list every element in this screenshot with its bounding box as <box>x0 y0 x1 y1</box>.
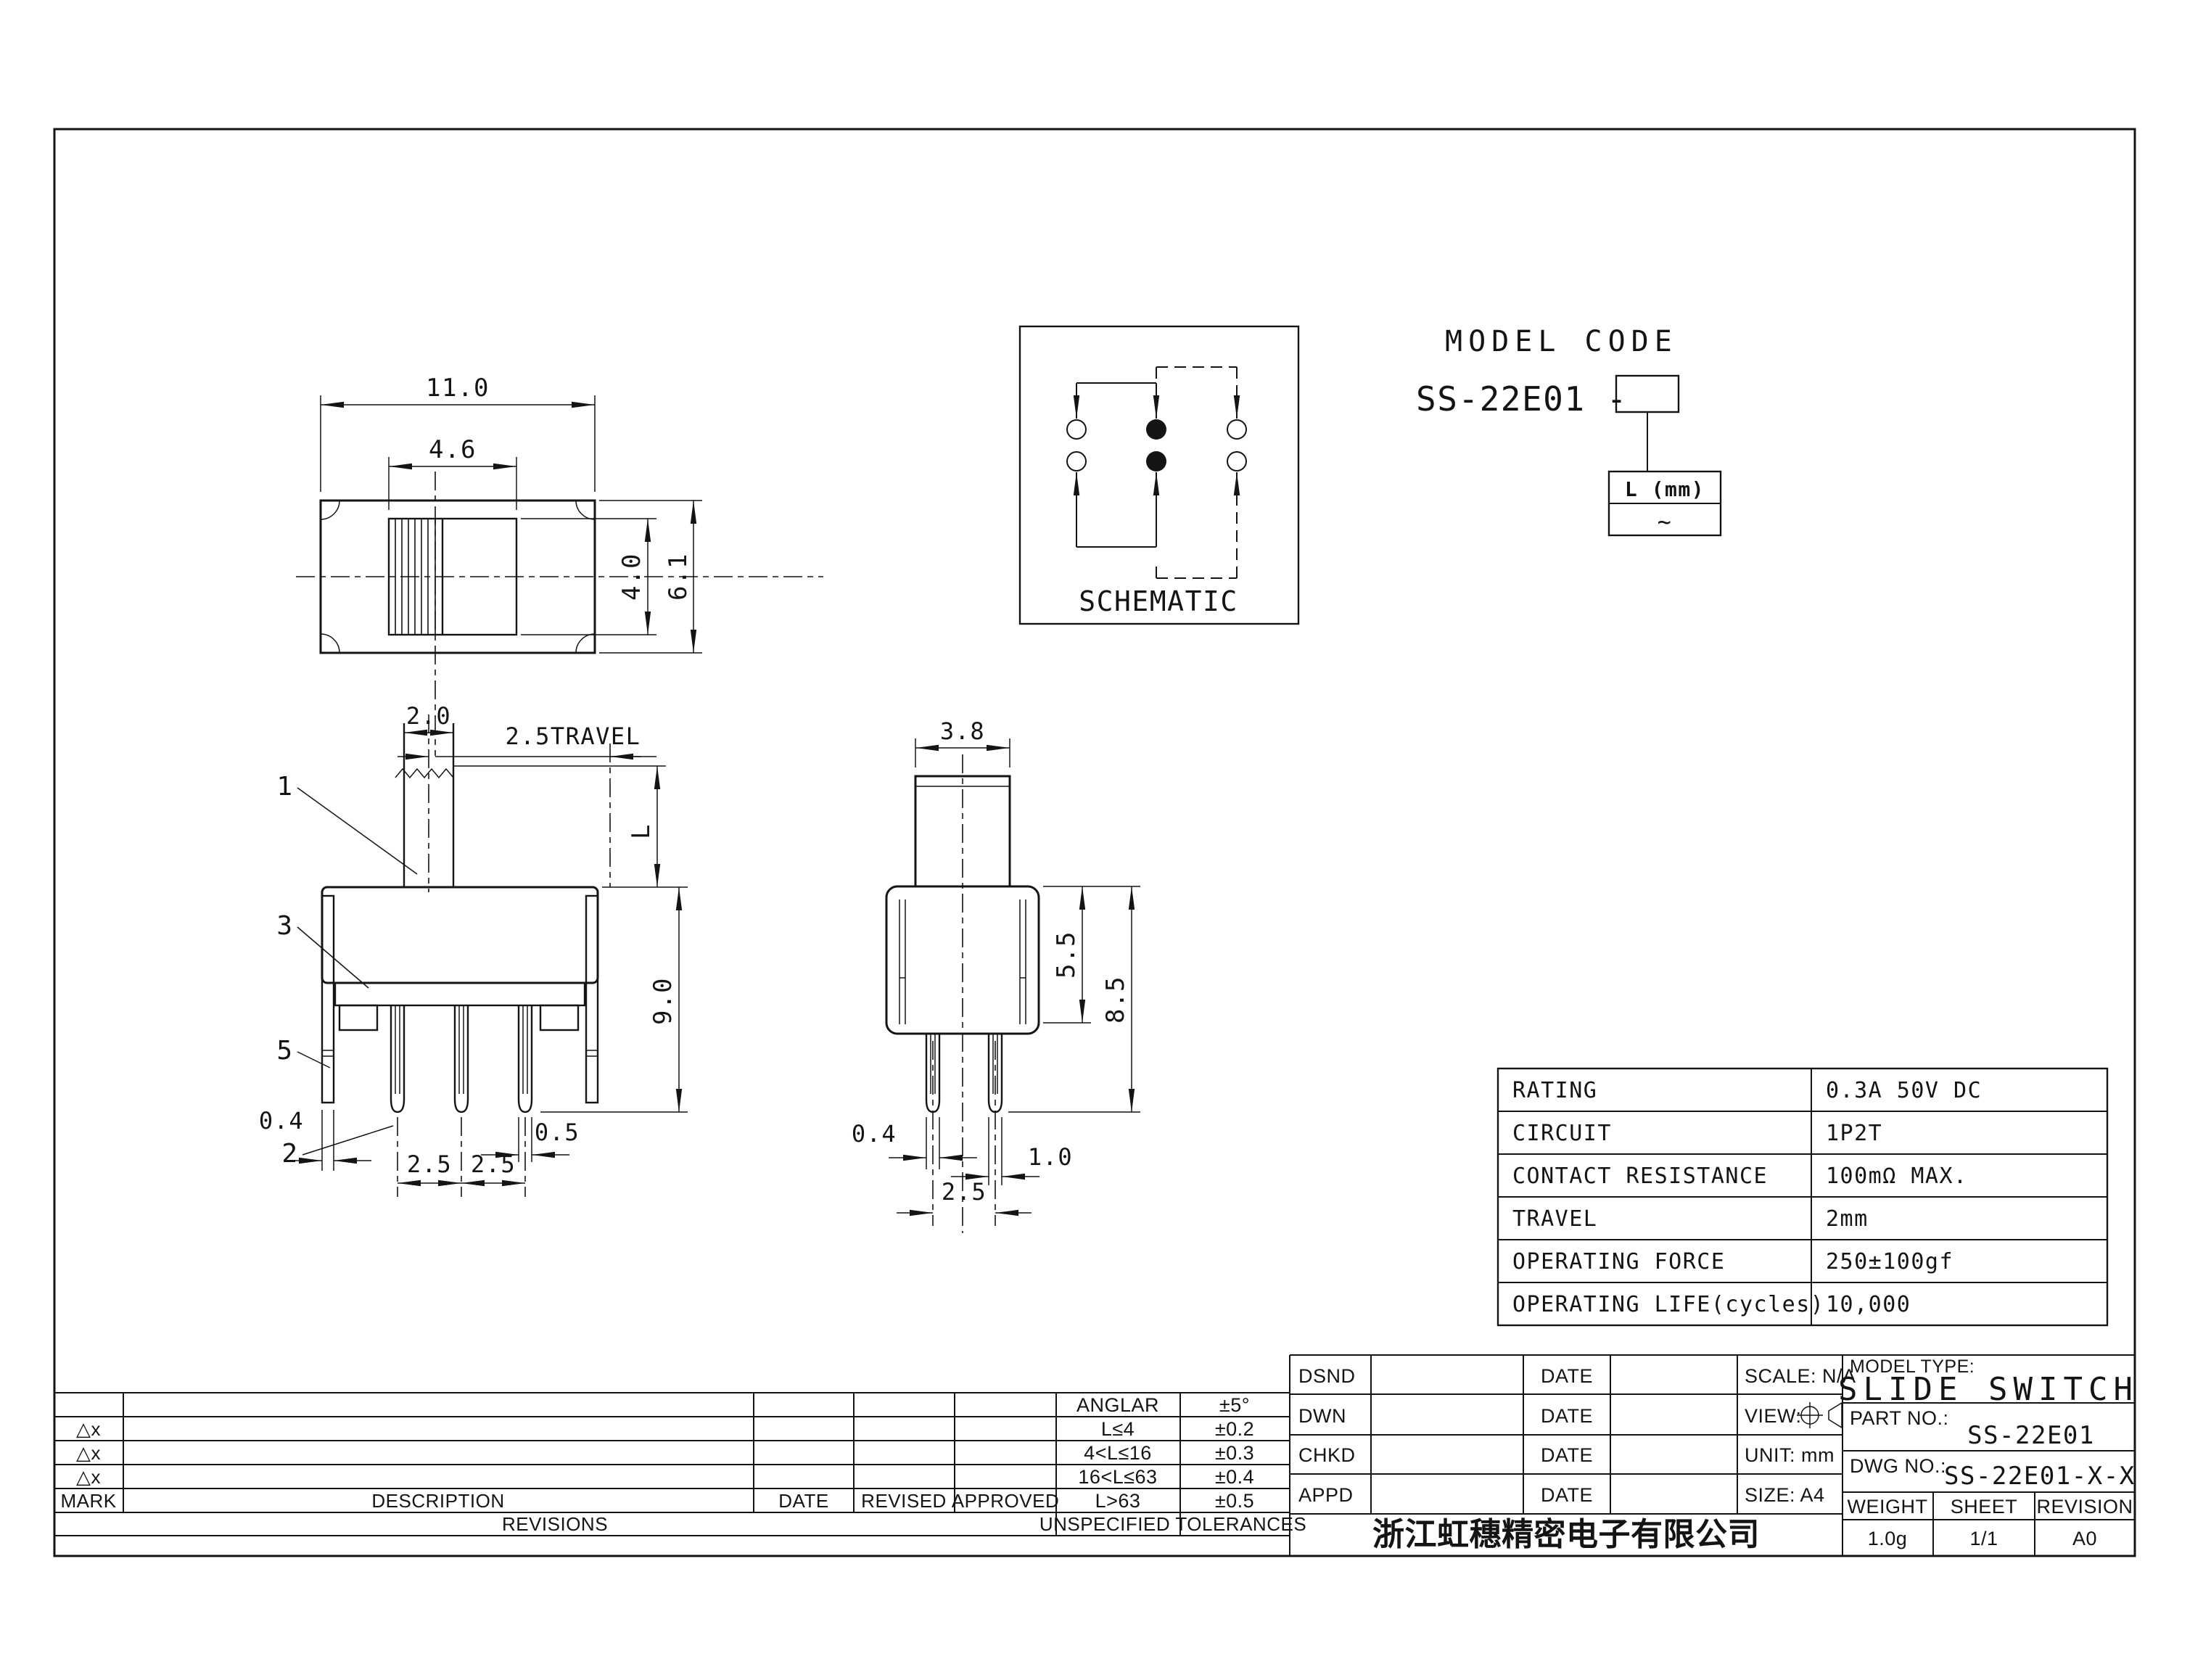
size-value: SIZE: A4 <box>1745 1484 1825 1506</box>
product-info-block: MODEL TYPE: SLIDE SWITCH PART NO.: SS-22… <box>1838 1356 2138 1556</box>
spec-label: OPERATING LIFE(cycles) <box>1512 1292 1824 1317</box>
contact-dots <box>1067 419 1246 472</box>
spec-label: RATING <box>1512 1078 1597 1103</box>
top-view: 11.0 4.6 4.0 6.1 <box>296 374 823 756</box>
col-header-description: DESCRIPTION <box>371 1490 504 1512</box>
dwg-no-label: DWG NO.: <box>1850 1455 1946 1477</box>
weight-label: WEIGHT <box>1848 1496 1928 1518</box>
dim-label: L <box>627 823 656 839</box>
part-no-label: PART NO.: <box>1850 1407 1949 1429</box>
spec-value: 10,000 <box>1826 1292 1911 1317</box>
weight-value: 1.0g <box>1868 1528 1908 1549</box>
revision-label: REVISION <box>2036 1496 2133 1518</box>
callout-label: 1 <box>276 772 293 802</box>
revision-mark: △x <box>76 1442 101 1464</box>
tol-range: L>63 <box>1095 1490 1141 1512</box>
dim-label: 11.0 <box>426 374 490 403</box>
spec-value: 0.3A 50V DC <box>1826 1078 1982 1103</box>
dim-label: 9.0 <box>649 977 678 1025</box>
spec-value: 250±100gf <box>1826 1249 1953 1275</box>
legend-tilde: ~ <box>1658 508 1673 535</box>
callout-label: 5 <box>276 1036 293 1066</box>
dwg-no-value: SS-22E01-X-X <box>1944 1462 2136 1491</box>
col-header-date: DATE <box>778 1490 828 1512</box>
signoff-date: DATE <box>1541 1365 1593 1387</box>
col-header-revised: REVISED <box>861 1490 947 1512</box>
drawing-sheet: 11.0 4.6 4.0 6.1 2.0 2.5TRAVEL <box>0 0 2211 1680</box>
dim-label: 8.5 <box>1101 976 1130 1024</box>
tol-value: ±0.2 <box>1215 1418 1254 1440</box>
dim-label: 3.8 <box>940 717 985 745</box>
spec-value: 100mΩ MAX. <box>1826 1164 1968 1189</box>
model-code-heading: MODEL CODE <box>1445 325 1678 358</box>
company-name: 浙江虹穗精密电子有限公司 <box>1372 1517 1760 1552</box>
tol-value: ±0.3 <box>1215 1442 1254 1464</box>
projection-symbol-icon <box>1797 1402 1842 1428</box>
dim-label: 2.0 <box>406 702 451 730</box>
dim-label: 2.5 <box>407 1150 452 1178</box>
col-header-mark: MARK <box>60 1490 116 1512</box>
dim-label: 0.5 <box>535 1119 580 1146</box>
dim-label: 2.5 <box>471 1150 516 1178</box>
tolerances-caption: UNSPECIFIED TOLERANCES <box>1039 1513 1306 1535</box>
signoff-role: DSND <box>1298 1365 1356 1387</box>
sheet-border <box>54 129 2135 1556</box>
revision-mark: △x <box>76 1418 101 1440</box>
spec-value: 1P2T <box>1826 1121 1882 1146</box>
tol-value: ±0.4 <box>1215 1466 1254 1488</box>
terminals <box>391 1005 532 1112</box>
front-view: 2.0 2.5TRAVEL L <box>259 702 688 1197</box>
schematic: SCHEMATIC <box>1020 326 1298 624</box>
dim-label: 2.5TRAVEL <box>506 722 641 750</box>
tol-range: ANGLAR <box>1076 1394 1159 1416</box>
revision-mark: △x <box>76 1466 101 1488</box>
model-code: MODEL CODE SS-22E01 - L (mm) ~ <box>1416 325 1721 535</box>
spec-value: 2mm <box>1826 1206 1869 1232</box>
signoff-role: APPD <box>1298 1484 1354 1506</box>
revisions-tolerances-table: ANGLAR ±5° L≤4 ±0.2 4<L≤16 ±0.3 16<L≤63 … <box>54 1355 1306 1556</box>
dim-label: 4.6 <box>429 435 477 464</box>
col-header-approved: APPROVED <box>952 1490 1060 1512</box>
signoff-role: CHKD <box>1298 1444 1356 1466</box>
tol-range: 4<L≤16 <box>1084 1442 1152 1464</box>
dim-label: 0.4 <box>259 1107 304 1135</box>
callout-label: 3 <box>276 911 293 941</box>
schematic-title: SCHEMATIC <box>1079 585 1238 617</box>
dim-label: 0.4 <box>852 1120 897 1148</box>
legend-l-mm: L (mm) <box>1625 477 1705 501</box>
tol-range: 16<L≤63 <box>1078 1466 1157 1488</box>
signoff-role: DWN <box>1298 1405 1346 1427</box>
spec-label: CIRCUIT <box>1512 1121 1612 1146</box>
model-code-prefix: SS-22E01 - <box>1416 379 1628 419</box>
dim-label: 6.1 <box>664 553 693 601</box>
sheet-label: SHEET <box>1951 1496 2018 1518</box>
revision-value: A0 <box>2072 1528 2097 1549</box>
part-no-value: SS-22E01 <box>1967 1421 2095 1450</box>
dim-label: 1.0 <box>1028 1143 1073 1171</box>
dim-label: 2.5 <box>942 1178 987 1206</box>
tol-value: ±5° <box>1219 1394 1250 1416</box>
spec-label: CONTACT RESISTANCE <box>1512 1164 1768 1189</box>
dim-label: 5.5 <box>1052 931 1081 979</box>
dim-label: 4.0 <box>617 553 646 601</box>
unit-value: UNIT: mm <box>1745 1444 1835 1466</box>
tol-range: L≤4 <box>1101 1418 1135 1440</box>
side-view: 3.8 5.5 8.5 0.4 <box>852 717 1140 1233</box>
signoff-date: DATE <box>1541 1484 1593 1506</box>
drawing-canvas: 11.0 4.6 4.0 6.1 2.0 2.5TRAVEL <box>0 0 2211 1680</box>
tol-value: ±0.5 <box>1215 1490 1254 1512</box>
sheet-value: 1/1 <box>1969 1528 1998 1549</box>
revisions-caption: REVISIONS <box>502 1513 608 1535</box>
model-type-value: SLIDE SWITCH <box>1838 1371 2138 1408</box>
signoff-date: DATE <box>1541 1405 1593 1427</box>
signoff-date: DATE <box>1541 1444 1593 1466</box>
spec-label: TRAVEL <box>1512 1206 1597 1232</box>
callout-label: 2 <box>281 1139 298 1169</box>
view-label: VIEW: <box>1745 1405 1802 1427</box>
spec-table: RATING 0.3A 50V DC CIRCUIT 1P2T CONTACT … <box>1498 1068 2107 1325</box>
spec-label: OPERATING FORCE <box>1512 1249 1725 1275</box>
